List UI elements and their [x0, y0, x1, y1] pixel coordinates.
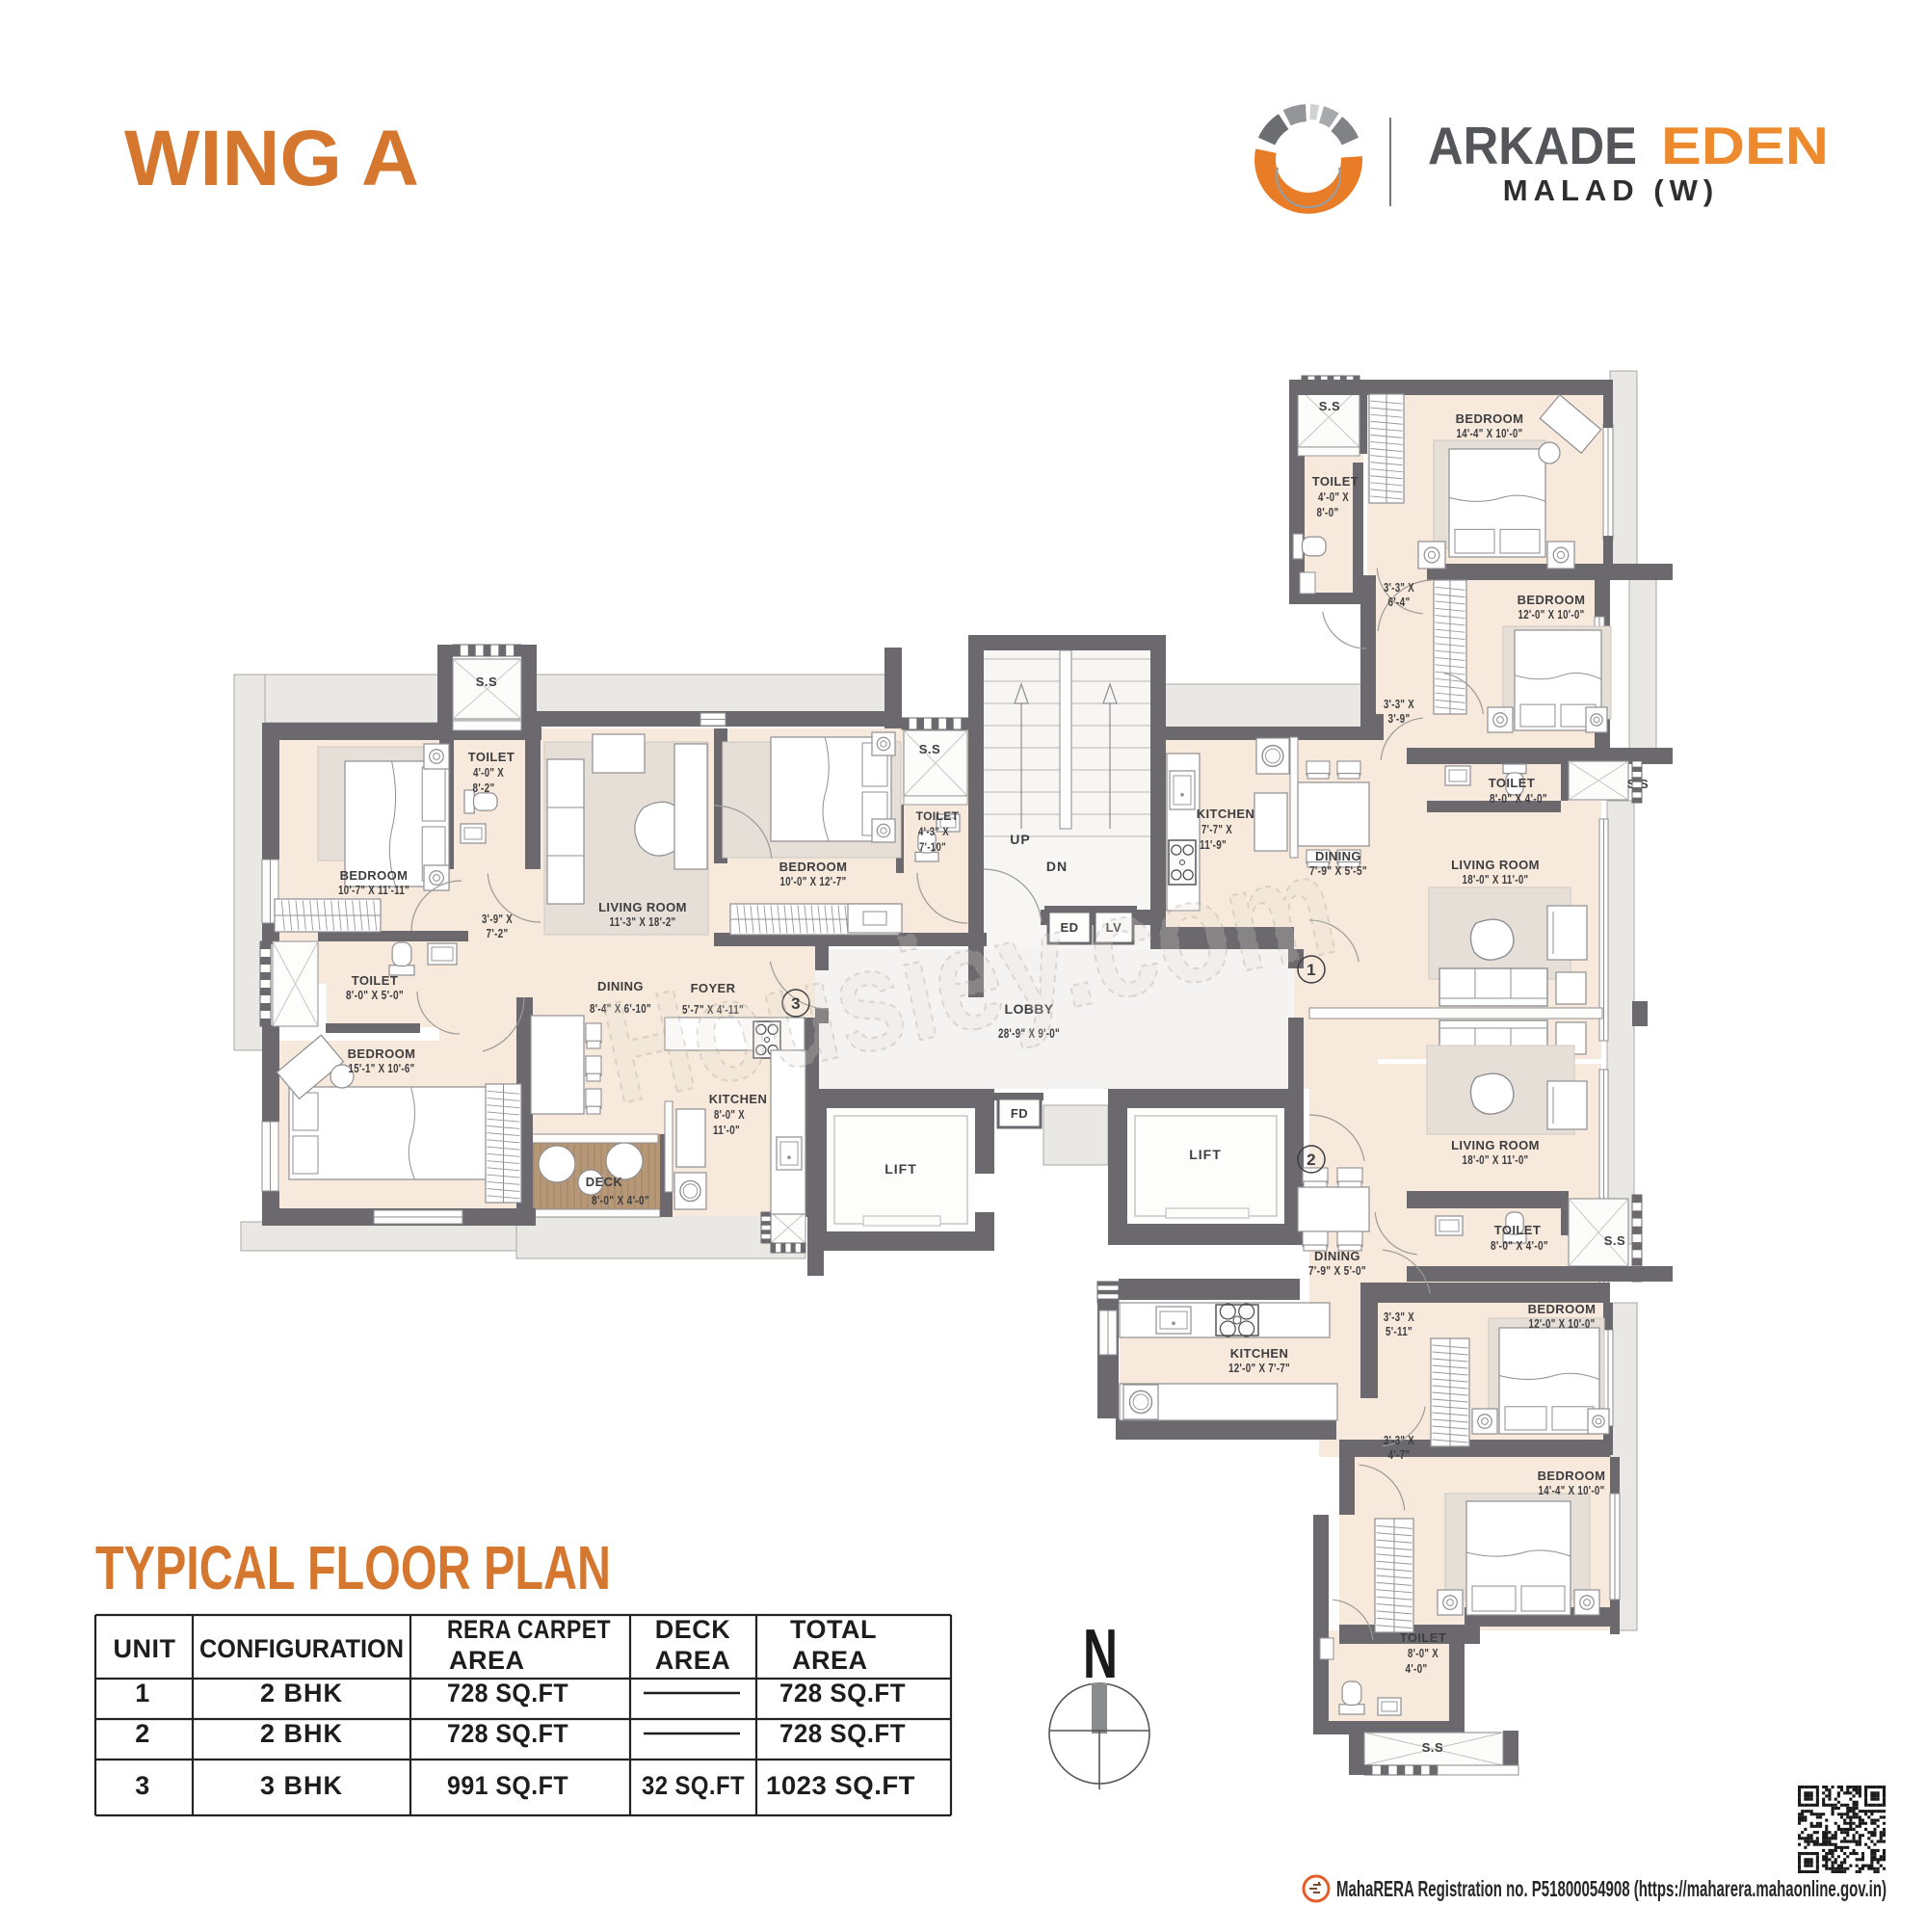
svg-text:7'-9" X 5'-0": 7'-9" X 5'-0": [1308, 1263, 1366, 1278]
svg-text:WING A: WING A: [124, 115, 419, 202]
svg-text:6'-4": 6'-4": [1388, 595, 1411, 609]
svg-text:14'-4" X 10'-0": 14'-4" X 10'-0": [1539, 1483, 1605, 1497]
svg-text:LIVING ROOM: LIVING ROOM: [1451, 1138, 1540, 1152]
svg-text:728 SQ.FT: 728 SQ.FT: [779, 1719, 906, 1748]
svg-text:S.S: S.S: [1604, 1233, 1625, 1248]
svg-text:TOILET: TOILET: [1494, 1223, 1541, 1237]
svg-text:S.S: S.S: [1422, 1740, 1443, 1755]
svg-text:728 SQ.FT: 728 SQ.FT: [447, 1719, 568, 1748]
svg-text:18'-0" X 11'-0": 18'-0" X 11'-0": [1463, 872, 1529, 887]
svg-text:12'-0" X 10'-0": 12'-0" X 10'-0": [1529, 1316, 1596, 1331]
svg-text:BEDROOM: BEDROOM: [1538, 1469, 1606, 1483]
svg-text:KITCHEN: KITCHEN: [1197, 807, 1255, 821]
svg-text:5'-11": 5'-11": [1386, 1324, 1412, 1338]
svg-text:DECK: DECK: [586, 1175, 623, 1189]
svg-text:32 SQ.FT: 32 SQ.FT: [642, 1771, 745, 1800]
svg-text:12'-0" X 7'-7": 12'-0" X 7'-7": [1228, 1361, 1290, 1375]
svg-text:TOTAL: TOTAL: [790, 1615, 877, 1644]
svg-text:FD: FD: [1011, 1106, 1028, 1121]
svg-text:DINING: DINING: [1314, 1249, 1360, 1263]
svg-text:8'-0" X 5'-0": 8'-0" X 5'-0": [346, 988, 404, 1002]
svg-text:2 BHK: 2 BHK: [260, 1679, 343, 1707]
svg-text:3'-3" X: 3'-3" X: [1384, 1433, 1414, 1447]
svg-text:S.S: S.S: [1319, 399, 1340, 413]
svg-text:AREA: AREA: [449, 1646, 525, 1675]
svg-text:BEDROOM: BEDROOM: [1528, 1302, 1597, 1316]
svg-text:BEDROOM: BEDROOM: [348, 1046, 416, 1061]
svg-text:LIFT: LIFT: [884, 1161, 917, 1177]
svg-text:12'-0" X 10'-0": 12'-0" X 10'-0": [1518, 607, 1585, 622]
svg-text:AREA: AREA: [655, 1646, 731, 1675]
svg-text:10'-7" X 11'-11": 10'-7" X 11'-11": [338, 883, 409, 897]
svg-text:BEDROOM: BEDROOM: [340, 868, 409, 883]
svg-text:728 SQ.FT: 728 SQ.FT: [447, 1679, 568, 1707]
svg-text:18'-0" X 11'-0": 18'-0" X 11'-0": [1463, 1152, 1529, 1167]
svg-text:KITCHEN: KITCHEN: [1230, 1346, 1289, 1361]
svg-text:3'-3" X: 3'-3" X: [1384, 697, 1414, 711]
svg-text:4'-0" X: 4'-0" X: [473, 765, 504, 780]
svg-text:728 SQ.FT: 728 SQ.FT: [779, 1679, 906, 1707]
svg-text:TOILET: TOILET: [1312, 474, 1359, 489]
svg-text:UP: UP: [1010, 832, 1030, 847]
svg-text:1023 SQ.FT: 1023 SQ.FT: [766, 1771, 915, 1800]
svg-text:S.S: S.S: [919, 742, 940, 756]
svg-text:4'-7": 4'-7": [1388, 1447, 1411, 1462]
svg-text:8'-0" X 4'-0": 8'-0" X 4'-0": [1490, 791, 1547, 806]
svg-text:N: N: [1083, 1616, 1118, 1693]
svg-text:14'-4" X 10'-0": 14'-4" X 10'-0": [1457, 426, 1523, 440]
svg-text:11'-0": 11'-0": [713, 1123, 740, 1137]
svg-text:BEDROOM: BEDROOM: [1518, 593, 1586, 607]
svg-text:EDEN: EDEN: [1661, 116, 1829, 175]
svg-text:TOILET: TOILET: [468, 750, 515, 764]
svg-text:4'-3" X: 4'-3" X: [918, 825, 949, 838]
svg-text:7'-2": 7'-2": [487, 926, 509, 940]
svg-text:1: 1: [135, 1679, 149, 1707]
svg-text:3: 3: [135, 1771, 149, 1800]
svg-text:15'-1" X 10'-6": 15'-1" X 10'-6": [349, 1061, 415, 1075]
svg-text:11'-3" X 18'-2": 11'-3" X 18'-2": [610, 914, 676, 929]
svg-text:7'-7" X: 7'-7" X: [1201, 822, 1232, 836]
svg-text:TOILET: TOILET: [352, 973, 398, 988]
svg-text:3 BHK: 3 BHK: [260, 1771, 343, 1800]
svg-text:DECK: DECK: [655, 1615, 731, 1644]
svg-text:RERA CARPET: RERA CARPET: [447, 1615, 611, 1644]
svg-text:2: 2: [1307, 1151, 1316, 1169]
svg-text:8'-2": 8'-2": [473, 781, 495, 795]
svg-text:S.S: S.S: [476, 675, 497, 689]
svg-text:3'-9" X: 3'-9" X: [482, 912, 513, 926]
svg-text:UNIT: UNIT: [114, 1634, 176, 1663]
svg-text:MahaRERA Registration no. P518: MahaRERA Registration no. P51800054908 (…: [1336, 1876, 1887, 1901]
svg-text:TOILET: TOILET: [916, 809, 960, 823]
svg-text:10'-0" X 12'-7": 10'-0" X 12'-7": [780, 874, 847, 888]
svg-text:8'-0" X: 8'-0" X: [1408, 1646, 1439, 1660]
svg-text:4'-0" X: 4'-0" X: [1318, 490, 1349, 504]
svg-text:7'-10": 7'-10": [919, 840, 946, 854]
svg-text:LIVING ROOM: LIVING ROOM: [1451, 858, 1540, 872]
svg-text:4'-0": 4'-0": [1406, 1661, 1428, 1676]
svg-text:3'-3" X: 3'-3" X: [1384, 1310, 1414, 1324]
svg-text:BEDROOM: BEDROOM: [1456, 411, 1524, 426]
svg-text:TYPICAL FLOOR PLAN: TYPICAL FLOOR PLAN: [95, 1533, 611, 1602]
svg-text:BEDROOM: BEDROOM: [779, 860, 848, 874]
svg-text:ARKADE: ARKADE: [1428, 116, 1637, 175]
svg-text:TOILET: TOILET: [1400, 1630, 1446, 1645]
svg-text:3'-3" X: 3'-3" X: [1384, 580, 1414, 595]
svg-text:CONFIGURATION: CONFIGURATION: [199, 1634, 404, 1663]
svg-text:3'-9": 3'-9": [1388, 711, 1411, 726]
svg-text:DN: DN: [1046, 859, 1068, 874]
svg-text:2 BHK: 2 BHK: [260, 1719, 343, 1748]
svg-text:TOILET: TOILET: [1489, 776, 1535, 790]
svg-text:8'-0": 8'-0": [1317, 505, 1339, 519]
svg-text:LIFT: LIFT: [1189, 1147, 1222, 1162]
svg-text:AREA: AREA: [792, 1646, 868, 1675]
svg-text:991 SQ.FT: 991 SQ.FT: [447, 1771, 568, 1800]
svg-text:MALAD (W): MALAD (W): [1503, 173, 1719, 207]
svg-text:LIVING ROOM: LIVING ROOM: [598, 900, 687, 914]
svg-text:8'-0" X 4'-0": 8'-0" X 4'-0": [1491, 1238, 1548, 1253]
svg-text:8'-0" X 4'-0": 8'-0" X 4'-0": [592, 1193, 649, 1207]
svg-text:2: 2: [135, 1719, 149, 1748]
